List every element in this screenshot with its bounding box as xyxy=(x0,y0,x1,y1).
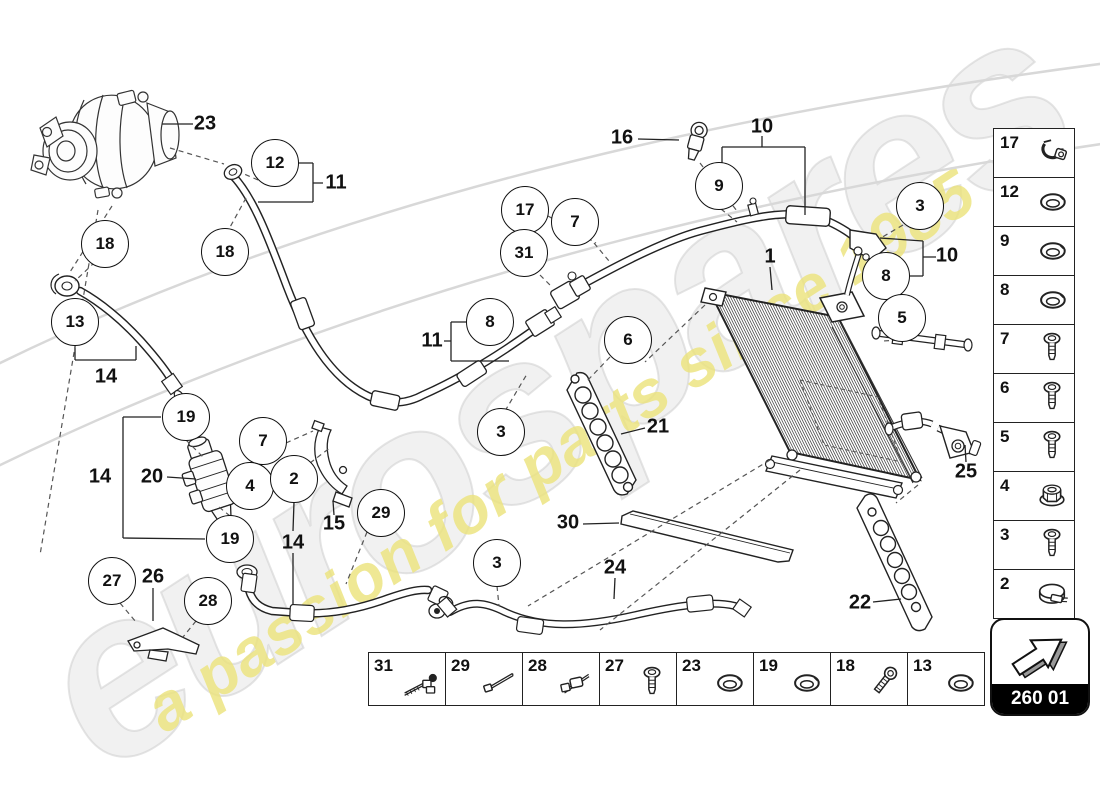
callout-23[interactable]: 23 xyxy=(194,113,216,136)
sidebar-part-cell-12[interactable]: 12 xyxy=(994,177,1074,226)
callout-11[interactable]: 11 xyxy=(325,172,346,195)
bracket-21-art xyxy=(567,373,636,495)
part-number: 2 xyxy=(1000,574,1009,594)
sidebar-part-cell-17[interactable]: 17 xyxy=(994,129,1074,177)
sidebar-part-cell-9[interactable]: 9 xyxy=(994,226,1074,275)
callout-12[interactable]: 12 xyxy=(251,139,299,187)
callout-28[interactable]: 28 xyxy=(184,577,232,625)
callout-7[interactable]: 7 xyxy=(551,198,599,246)
part-number: 19 xyxy=(759,656,778,676)
diagram-code-box[interactable]: 260 01 xyxy=(990,618,1090,716)
strip-part-cell-13[interactable]: 13 xyxy=(907,653,984,705)
hose-clamp-icon xyxy=(1032,574,1072,614)
sidebar-part-cell-8[interactable]: 8 xyxy=(994,275,1074,324)
callout-3[interactable]: 3 xyxy=(473,539,521,587)
callout-14[interactable]: 14 xyxy=(89,466,111,489)
seal-strip-art xyxy=(621,511,793,562)
screw-icon xyxy=(1032,427,1072,467)
p-clamp-icon xyxy=(1032,133,1072,173)
callout-14[interactable]: 14 xyxy=(282,532,304,555)
callout-30[interactable]: 30 xyxy=(557,512,579,535)
strip-part-cell-23[interactable]: 23 xyxy=(676,653,753,705)
part-number: 27 xyxy=(605,656,624,676)
part-number: 6 xyxy=(1000,378,1009,398)
callout-21[interactable]: 21 xyxy=(647,416,669,439)
fasteners-strip: 3129282723191813 xyxy=(368,652,985,706)
cable-tie-clamp-icon xyxy=(554,663,596,703)
callout-10[interactable]: 10 xyxy=(936,245,958,268)
bolt-icon xyxy=(862,663,904,703)
callout-22[interactable]: 22 xyxy=(849,592,871,615)
o-ring-icon xyxy=(939,663,981,703)
sidebar-part-cell-4[interactable]: 4 xyxy=(994,471,1074,520)
part-number: 18 xyxy=(836,656,855,676)
o-ring-icon xyxy=(1032,231,1072,271)
callout-9[interactable]: 9 xyxy=(695,162,743,210)
part-number: 9 xyxy=(1000,231,1009,251)
callout-8[interactable]: 8 xyxy=(862,252,910,300)
flange-nut-icon xyxy=(1032,476,1072,516)
part-number: 28 xyxy=(528,656,547,676)
hose-24-art xyxy=(429,595,751,635)
o-ring-icon xyxy=(1032,280,1072,320)
part-number: 5 xyxy=(1000,427,1009,447)
part-number: 31 xyxy=(374,656,393,676)
callout-2[interactable]: 2 xyxy=(270,455,318,503)
callout-7[interactable]: 7 xyxy=(239,417,287,465)
nav-arrow-icon xyxy=(992,620,1088,682)
callout-6[interactable]: 6 xyxy=(604,316,652,364)
sidebar-part-cell-7[interactable]: 7 xyxy=(994,324,1074,373)
strip-part-cell-27[interactable]: 27 xyxy=(599,653,676,705)
callout-13[interactable]: 13 xyxy=(51,298,99,346)
callout-16[interactable]: 16 xyxy=(611,127,633,150)
callout-19[interactable]: 19 xyxy=(206,515,254,563)
cable-tie-icon xyxy=(477,663,519,703)
sidebar-part-cell-5[interactable]: 5 xyxy=(994,422,1074,471)
part-number: 3 xyxy=(1000,525,1009,545)
part-number: 4 xyxy=(1000,476,1009,496)
strip-part-cell-31[interactable]: 31 xyxy=(369,653,445,705)
part-number: 29 xyxy=(451,656,470,676)
part-number: 8 xyxy=(1000,280,1009,300)
sidebar-part-cell-3[interactable]: 3 xyxy=(994,520,1074,569)
sensor-16-art xyxy=(684,121,709,162)
callout-27[interactable]: 27 xyxy=(88,557,136,605)
callout-1[interactable]: 1 xyxy=(764,246,775,269)
parts-diagram-page: eurospares a passion for parts since 198… xyxy=(0,0,1100,800)
callout-5[interactable]: 5 xyxy=(878,294,926,342)
strip-part-cell-28[interactable]: 28 xyxy=(522,653,599,705)
o-ring-icon xyxy=(785,663,827,703)
strip-part-cell-29[interactable]: 29 xyxy=(445,653,522,705)
screw-icon xyxy=(1032,525,1072,565)
part-number: 13 xyxy=(913,656,932,676)
strip-part-cell-18[interactable]: 18 xyxy=(830,653,907,705)
callout-31[interactable]: 31 xyxy=(500,229,548,277)
hose-14-art xyxy=(237,565,454,622)
screw-icon xyxy=(1032,378,1072,418)
callout-4[interactable]: 4 xyxy=(226,462,274,510)
callout-3[interactable]: 3 xyxy=(896,182,944,230)
callout-26[interactable]: 26 xyxy=(142,566,164,589)
diagram-code: 260 01 xyxy=(992,684,1088,714)
callout-17[interactable]: 17 xyxy=(501,186,549,234)
callout-20[interactable]: 20 xyxy=(141,466,163,489)
part-number: 17 xyxy=(1000,133,1019,153)
o-ring-icon xyxy=(1032,182,1072,222)
part-number: 12 xyxy=(1000,182,1019,202)
bracket-26-art xyxy=(128,628,199,661)
parts-sidebar: 171298765432 xyxy=(993,128,1075,619)
screw-icon xyxy=(1032,329,1072,369)
compressor-art xyxy=(31,86,179,198)
callout-10[interactable]: 10 xyxy=(751,116,773,139)
callout-18[interactable]: 18 xyxy=(201,228,249,276)
callout-18[interactable]: 18 xyxy=(81,220,129,268)
bracket-15-art xyxy=(312,421,352,507)
strip-part-cell-19[interactable]: 19 xyxy=(753,653,830,705)
callout-14[interactable]: 14 xyxy=(95,366,117,389)
callout-8[interactable]: 8 xyxy=(466,298,514,346)
sidebar-part-cell-6[interactable]: 6 xyxy=(994,373,1074,422)
callout-15[interactable]: 15 xyxy=(323,513,345,536)
callout-25[interactable]: 25 xyxy=(955,461,977,484)
callout-24[interactable]: 24 xyxy=(604,557,626,580)
callout-3[interactable]: 3 xyxy=(477,408,525,456)
sidebar-part-cell-2[interactable]: 2 xyxy=(994,569,1074,618)
part-number: 7 xyxy=(1000,329,1009,349)
callout-19[interactable]: 19 xyxy=(162,393,210,441)
cable-tie-anchor-icon xyxy=(400,663,442,703)
callout-29[interactable]: 29 xyxy=(357,489,405,537)
screw-icon xyxy=(631,663,673,703)
part-number: 23 xyxy=(682,656,701,676)
callout-11[interactable]: 11 xyxy=(421,330,442,353)
o-ring-icon xyxy=(708,663,750,703)
